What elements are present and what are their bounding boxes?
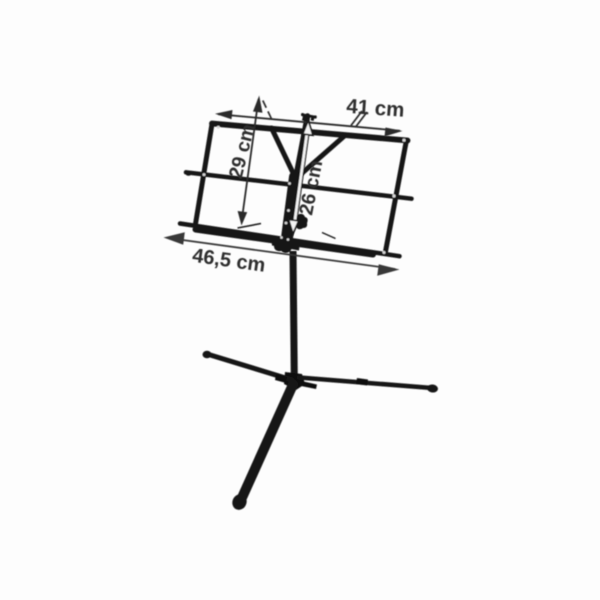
svg-text:29 cm: 29 cm [225,122,260,181]
svg-text:41 cm: 41 cm [346,95,406,122]
